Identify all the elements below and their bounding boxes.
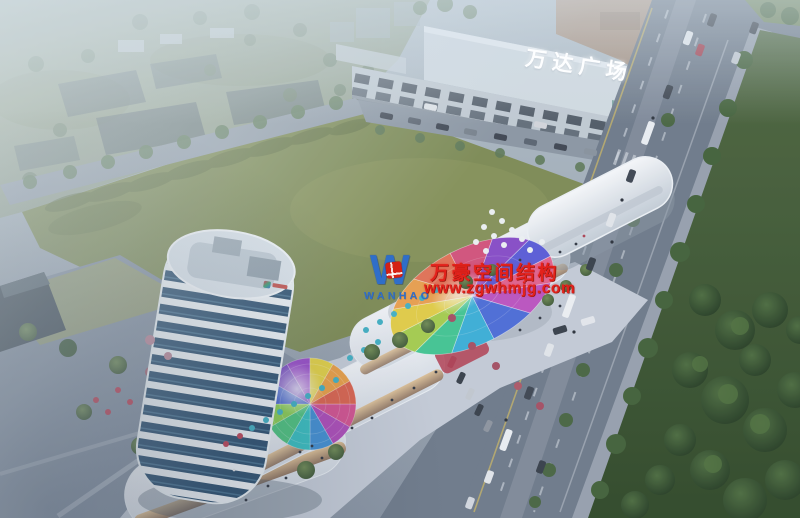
- tower-logo-mark: [263, 281, 271, 289]
- wanhao-logo: W WANHAO: [364, 250, 428, 308]
- watermark-website-url: www.zgwhmjg.com: [424, 280, 575, 298]
- wanhao-brand-text: WANHAO: [364, 290, 432, 302]
- aerial-render-scene: 万达广场 W WANHAO 万豪空间结构 www.zgwhmjg.com: [0, 0, 800, 518]
- watermark: W WANHAO 万豪空间结构 www.zgwhmjg.com: [358, 250, 588, 312]
- wanhao-shield-icon: [385, 261, 403, 279]
